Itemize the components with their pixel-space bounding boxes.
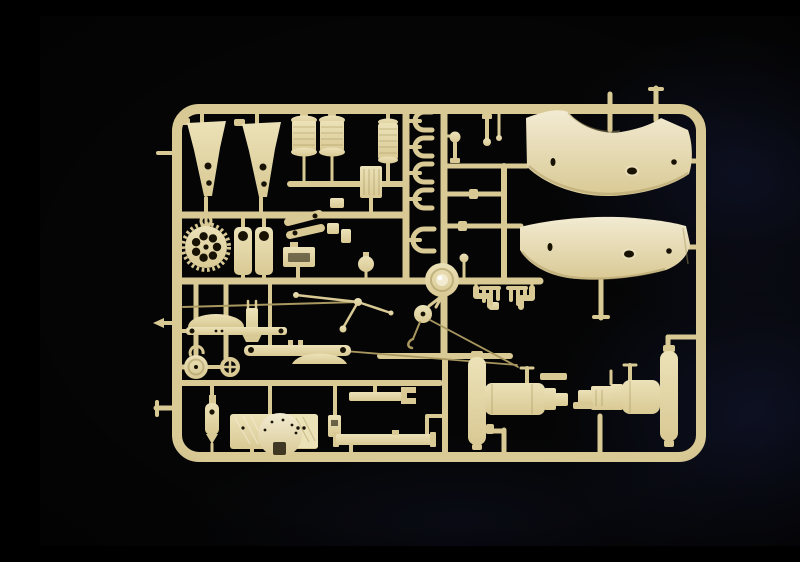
model-kit-sprue-photo: Product photograph of a sand-tan injecti… bbox=[40, 16, 800, 546]
vignette bbox=[40, 16, 800, 546]
